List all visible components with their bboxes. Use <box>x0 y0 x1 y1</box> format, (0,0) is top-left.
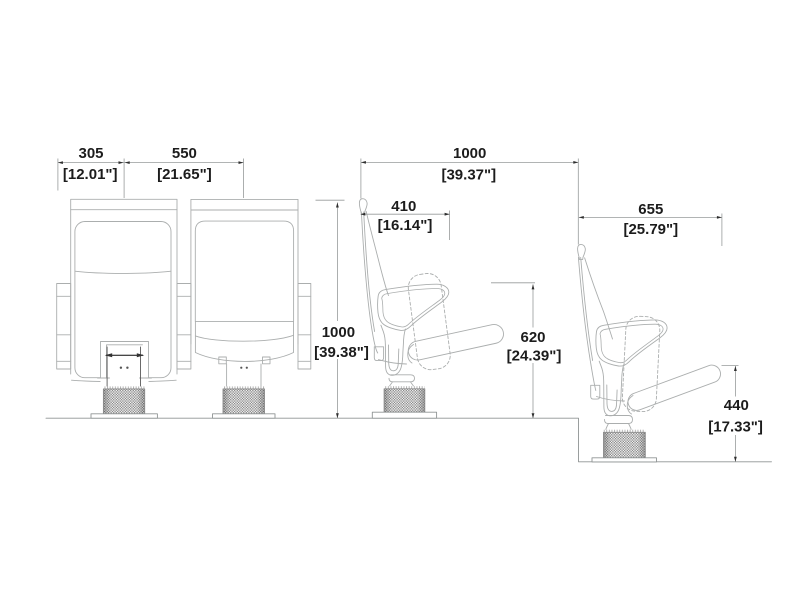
svg-text:[39.38"]: [39.38"] <box>314 344 369 361</box>
svg-text:1000: 1000 <box>453 145 486 162</box>
svg-text:655: 655 <box>638 201 663 218</box>
svg-text:[39.37"]: [39.37"] <box>441 166 496 183</box>
svg-text:[24.39"]: [24.39"] <box>507 347 562 364</box>
svg-text:[12.01"]: [12.01"] <box>63 166 118 183</box>
svg-text:410: 410 <box>391 198 416 215</box>
svg-text:[25.79"]: [25.79"] <box>623 221 678 238</box>
svg-text:[21.65"]: [21.65"] <box>157 166 212 183</box>
svg-text:440: 440 <box>724 397 749 414</box>
svg-text:550: 550 <box>172 145 197 162</box>
svg-text:620: 620 <box>520 329 545 346</box>
svg-text:305: 305 <box>78 145 103 162</box>
svg-text:[17.33"]: [17.33"] <box>708 418 763 435</box>
svg-text:[16.14"]: [16.14"] <box>378 217 433 234</box>
svg-text:1000: 1000 <box>322 324 355 341</box>
